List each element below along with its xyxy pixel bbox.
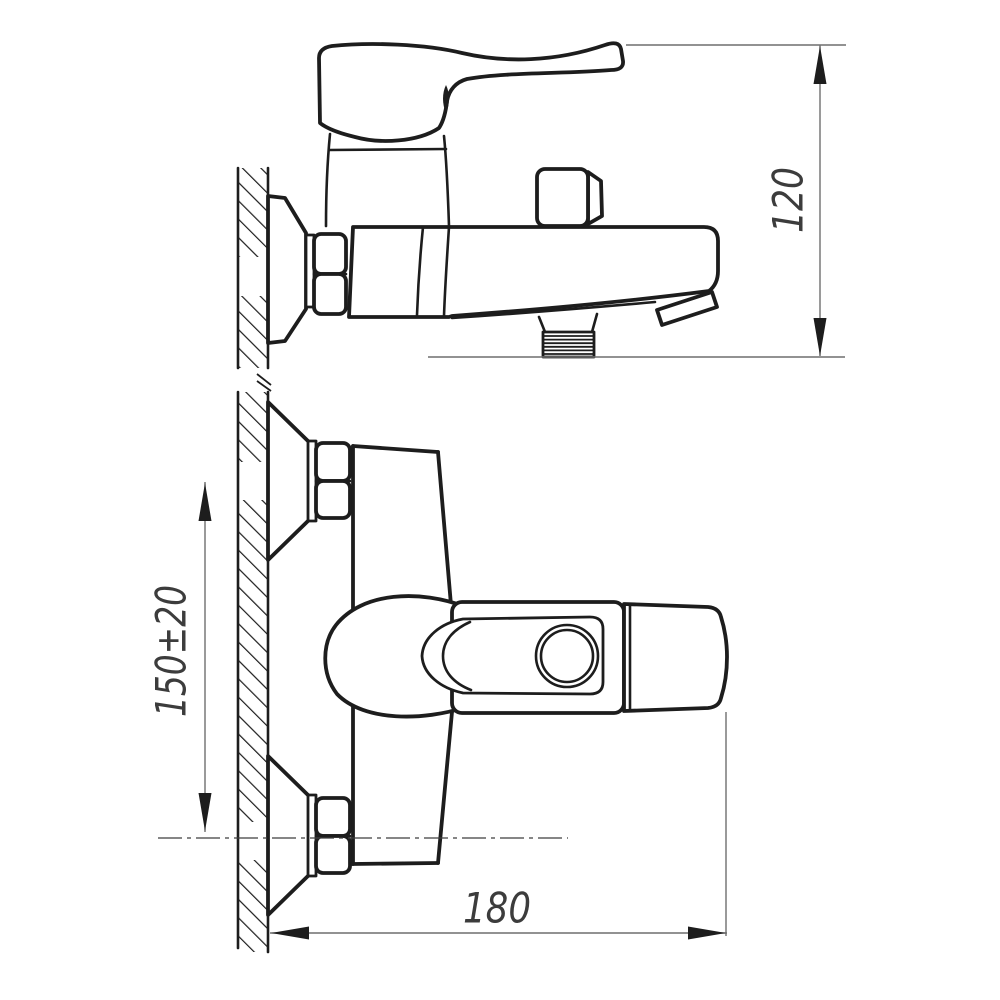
handle-front: [325, 596, 727, 717]
connector-nut-side: [314, 234, 346, 314]
handle-neck-left: [326, 134, 330, 226]
dimension-label-120: 120: [764, 167, 813, 233]
faucet-body-side: [349, 227, 718, 317]
faucet-dimension-drawing: 120: [0, 0, 1000, 1000]
escutcheon-side: [268, 196, 306, 343]
handle-recess: [422, 617, 603, 694]
dimension-150: 150±20: [147, 482, 212, 832]
wall-section-front: [238, 381, 271, 952]
dimension-label-180: 180: [463, 884, 531, 933]
spout-front: [624, 604, 727, 711]
shower-outlet: [539, 314, 597, 357]
handle-base-split-line: [329, 149, 446, 150]
escutcheon-bottom: [268, 756, 310, 915]
handle-lever-side: [319, 43, 623, 141]
escutcheon-top: [268, 402, 310, 560]
side-view: 120: [238, 43, 846, 385]
connection-bottom: [268, 756, 350, 915]
front-view: 150±20 180: [147, 381, 728, 952]
drawing-canvas: 120: [0, 0, 1000, 1000]
diverter-knob: [537, 169, 602, 226]
connection-top: [268, 402, 350, 560]
dimension-label-150: 150±20: [147, 585, 196, 717]
wall-section-side: [238, 168, 271, 385]
